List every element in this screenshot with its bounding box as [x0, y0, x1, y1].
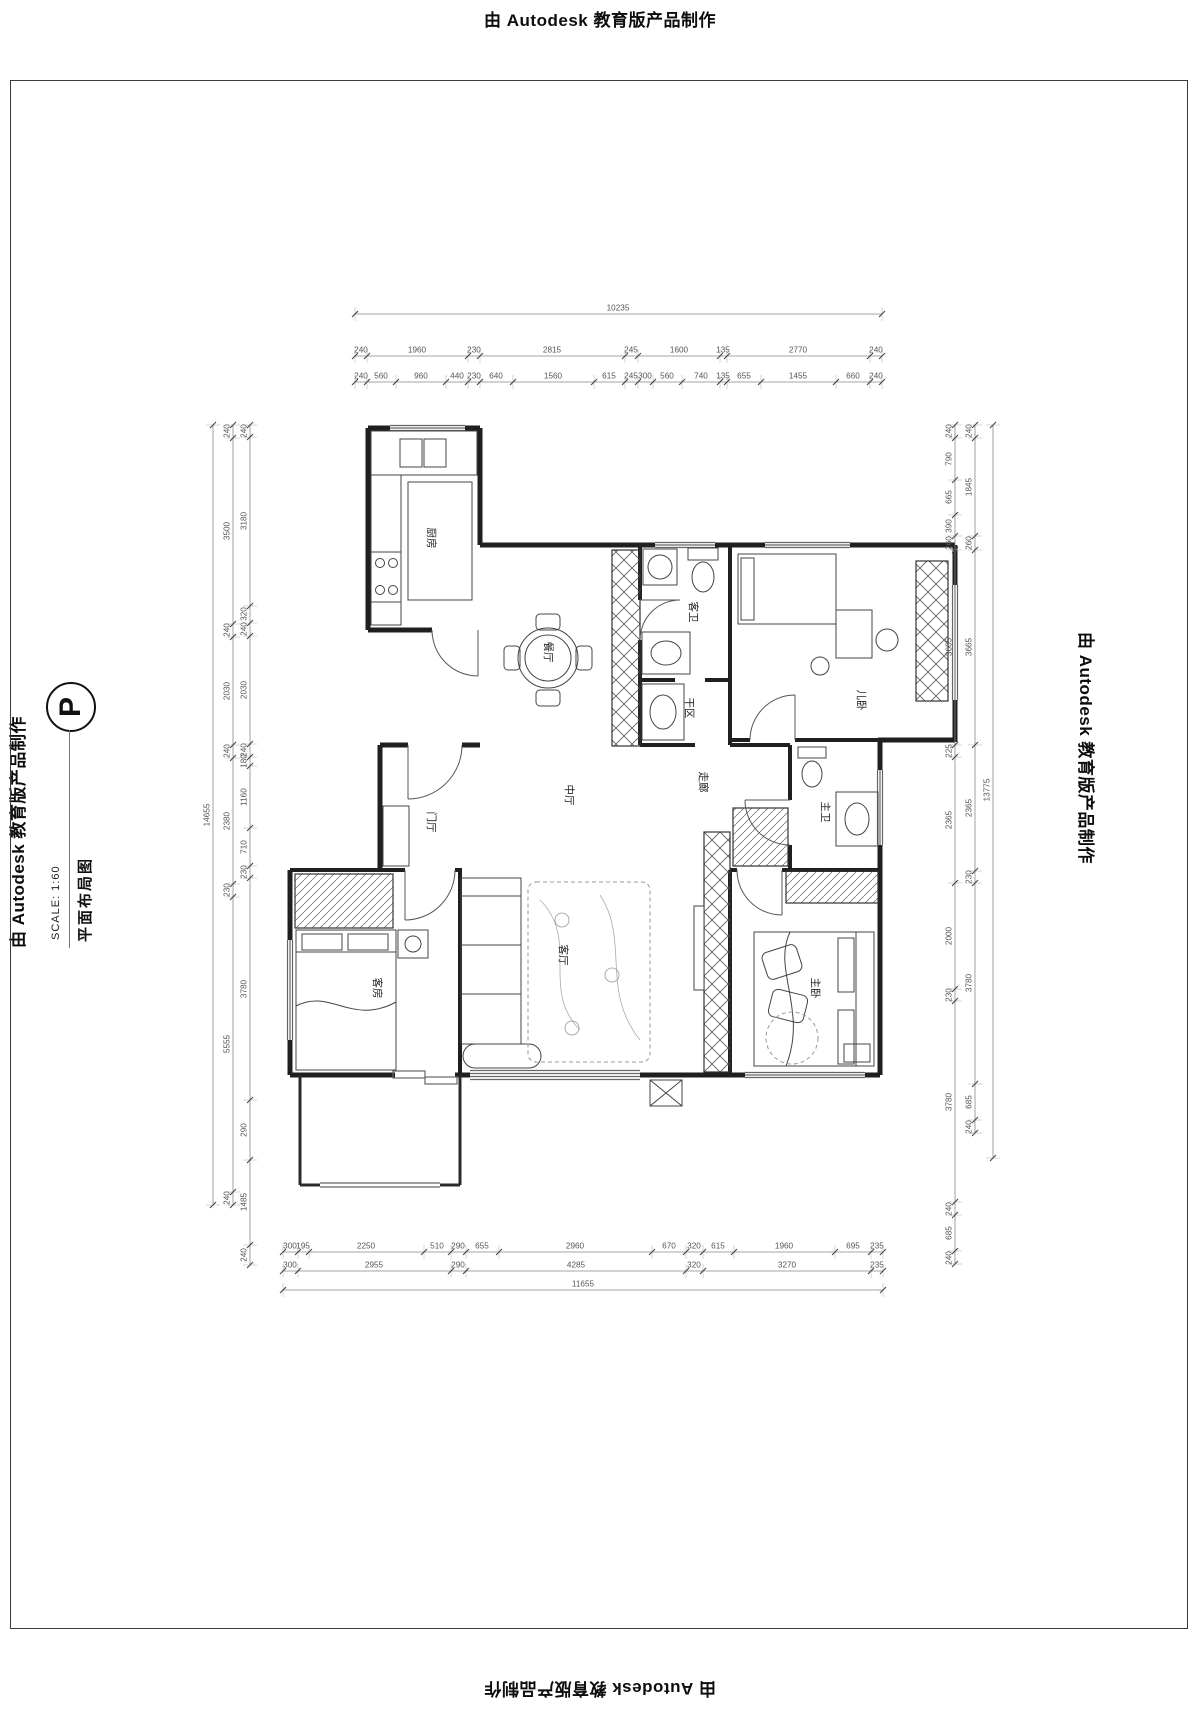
dim-label: 1485 [240, 1192, 249, 1211]
dim-label: 3270 [778, 1261, 797, 1270]
balcony-walls [300, 1075, 460, 1185]
dim-label: 2030 [223, 681, 232, 700]
tv-wall-hatch [704, 832, 730, 1072]
toilet [692, 562, 714, 592]
kitchen-island [408, 482, 472, 600]
pillow [838, 1010, 854, 1064]
nightstand [398, 930, 428, 958]
dim-label: 510 [430, 1242, 444, 1251]
rugs [528, 882, 818, 1064]
dim-label: 790 [945, 452, 954, 466]
dim-label: 240 [240, 1248, 249, 1262]
dim-label: 710 [240, 840, 249, 854]
dim-label: 2030 [240, 680, 249, 699]
sofa-armrest [461, 878, 521, 896]
dim-label: 235 [870, 1242, 884, 1251]
dim-label: 3780 [240, 979, 249, 998]
kids-wardrobe-hatch [916, 561, 948, 701]
dim-label: 670 [662, 1242, 676, 1251]
sideboard-hatch [612, 550, 640, 746]
dim-label: 300 [283, 1242, 297, 1251]
stool [811, 657, 829, 675]
room-label-master-bath: 主卫 [819, 802, 831, 823]
dim-label: 655 [475, 1242, 489, 1251]
kitchen-sink [424, 439, 446, 467]
pillow [741, 558, 754, 620]
dim-label: 230 [965, 870, 974, 884]
room-label-kitchen: 厨房 [425, 528, 438, 549]
room-label-living-room: 客厅 [557, 945, 570, 966]
dim-label: 3780 [945, 1092, 954, 1111]
dim-label: 615 [602, 372, 616, 381]
dim-label: 135 [716, 372, 730, 381]
room-label-guest-bath: 客卫 [687, 602, 700, 623]
dim-label: 2770 [789, 346, 808, 355]
drawing-sheet: 由 Autodesk 教育版产品制作 由 Autodesk 教育版产品制作 由 … [0, 0, 1200, 1709]
tv [694, 906, 704, 990]
dim-label: 240 [240, 622, 249, 636]
dim-label: 240 [240, 424, 249, 438]
dim-label: 195 [296, 1242, 310, 1251]
dim-label: 740 [694, 372, 708, 381]
chaise [463, 1044, 541, 1068]
dim-label: 960 [414, 372, 428, 381]
dim-label: 1960 [408, 346, 427, 355]
dim-label: 10235 [607, 304, 630, 313]
floor-plan-svg: 1023524019602302815245160013527702402405… [0, 0, 1200, 1709]
toilet-tank [798, 747, 826, 758]
dim-label: 290 [240, 1123, 249, 1137]
dim-label: 3180 [240, 511, 249, 530]
dim-label: 320 [687, 1261, 701, 1270]
dim-label: 655 [737, 372, 751, 381]
dim-label: 230 [223, 883, 232, 897]
dim-label: 230 [945, 988, 954, 1002]
dim-label: 2815 [543, 346, 562, 355]
dim-label: 3665 [965, 637, 974, 656]
dim-label: 240 [869, 372, 883, 381]
dim-label: 13775 [983, 778, 992, 801]
room-label-corridor: 走廊 [697, 772, 710, 793]
sink [845, 803, 869, 835]
dim-label: 440 [450, 372, 464, 381]
dim-label: 560 [374, 372, 388, 381]
dim-label: 240 [965, 424, 974, 438]
dim-label: 1160 [240, 788, 249, 806]
dim-label: 240 [965, 1120, 974, 1134]
armchair [761, 943, 804, 981]
dim-label: 1600 [670, 346, 689, 355]
shoe-cabinet [383, 806, 409, 866]
furniture [296, 431, 898, 1106]
dim-label: 240 [223, 623, 232, 637]
dim-label: 290 [451, 1261, 465, 1270]
room-label-dry-area: 干区 [683, 698, 695, 719]
dim-label: 240 [945, 424, 954, 438]
pillow [838, 938, 854, 992]
dry-area-counter [642, 684, 684, 740]
dim-label: 260 [945, 536, 954, 550]
dim-label: 240 [354, 372, 368, 381]
desk-chair [876, 629, 898, 651]
dining-chair [536, 690, 560, 706]
dim-label: 2250 [357, 1242, 376, 1251]
sink [650, 695, 676, 729]
master-closet-hatch [786, 871, 878, 903]
bench [844, 1044, 870, 1062]
dim-label: 240 [223, 424, 232, 438]
room-label-master-bedroom: 主卧 [809, 978, 822, 999]
dim-label: 2955 [365, 1261, 384, 1270]
dim-label: 290 [451, 1242, 465, 1251]
room-label-guest-bedroom: 客房 [371, 978, 384, 999]
dim-label: 245 [624, 372, 638, 381]
sink [651, 641, 681, 665]
desk [836, 610, 872, 658]
dim-label: 225 [945, 744, 954, 758]
dim-label: 640 [489, 372, 503, 381]
dim-label: 300 [638, 372, 652, 381]
dim-label: 2000 [945, 926, 954, 945]
corridor-runner-hatch [733, 808, 788, 866]
dim-label: 2380 [223, 811, 232, 830]
dim-label: 240 [223, 1191, 232, 1205]
exterior-walls [290, 428, 955, 1075]
dim-label: 3500 [223, 521, 232, 540]
dim-label: 14655 [203, 803, 212, 826]
dim-label: 320 [687, 1242, 701, 1251]
dim-label: 560 [660, 372, 674, 381]
dim-label: 3780 [965, 973, 974, 992]
dim-label: 660 [846, 372, 860, 381]
dim-label: 2365 [945, 810, 954, 829]
kids-bed [738, 554, 836, 624]
dim-label: 135 [716, 346, 730, 355]
dim-label: 685 [945, 1226, 954, 1240]
dim-label: 230 [240, 865, 249, 879]
guest-bed [296, 930, 396, 1070]
dim-label: 2960 [566, 1242, 585, 1251]
dim-label: 230 [467, 372, 481, 381]
room-label-kids-bedroom: 儿卧 [855, 690, 868, 711]
dim-label: 240 [223, 744, 232, 758]
toilet-tank [688, 548, 718, 560]
dim-label: 240 [945, 1251, 954, 1265]
dim-label: 2365 [965, 798, 974, 817]
dim-label: 240 [354, 346, 368, 355]
dim-label: 235 [870, 1261, 884, 1270]
dim-label: 240 [869, 346, 883, 355]
dim-label: 240 [945, 1202, 954, 1216]
dim-label: 390 [945, 519, 954, 533]
dim-label: 695 [846, 1242, 860, 1251]
dim-label: 320 [240, 607, 249, 621]
sofa [461, 896, 521, 1044]
armchair [767, 988, 809, 1024]
guest-closet-hatch [295, 874, 393, 928]
dim-label: 245 [624, 346, 638, 355]
dim-label: 685 [965, 1095, 974, 1109]
pillow [302, 934, 342, 950]
room-label-dining: 餐厅 [542, 642, 555, 663]
dim-label: 1845 [965, 477, 974, 496]
dim-label: 230 [467, 346, 481, 355]
bath-vanity [836, 792, 878, 846]
dim-label: 300 [283, 1261, 297, 1270]
dim-label: 1960 [775, 1242, 794, 1251]
bedroom-rug [766, 1012, 818, 1064]
dim-label: 1455 [789, 372, 808, 381]
room-label-middle-hall: 中厅 [563, 785, 576, 806]
dim-label: 1560 [544, 372, 563, 381]
dim-label: 11655 [572, 1280, 595, 1289]
dim-label: 5555 [223, 1034, 232, 1053]
toilet [802, 761, 822, 787]
kitchen-sink [400, 439, 422, 467]
dim-label: 615 [711, 1242, 725, 1251]
dim-label: 3665 [945, 637, 954, 656]
dim-label: 4285 [567, 1261, 586, 1270]
living-rug [528, 882, 650, 1062]
dim-label: 260 [965, 536, 974, 550]
pillow [348, 934, 388, 950]
dim-label: 180 [240, 754, 249, 768]
dim-label: 665 [945, 490, 954, 504]
room-label-foyer: 门厅 [425, 812, 438, 833]
bath-vanity [642, 632, 690, 674]
